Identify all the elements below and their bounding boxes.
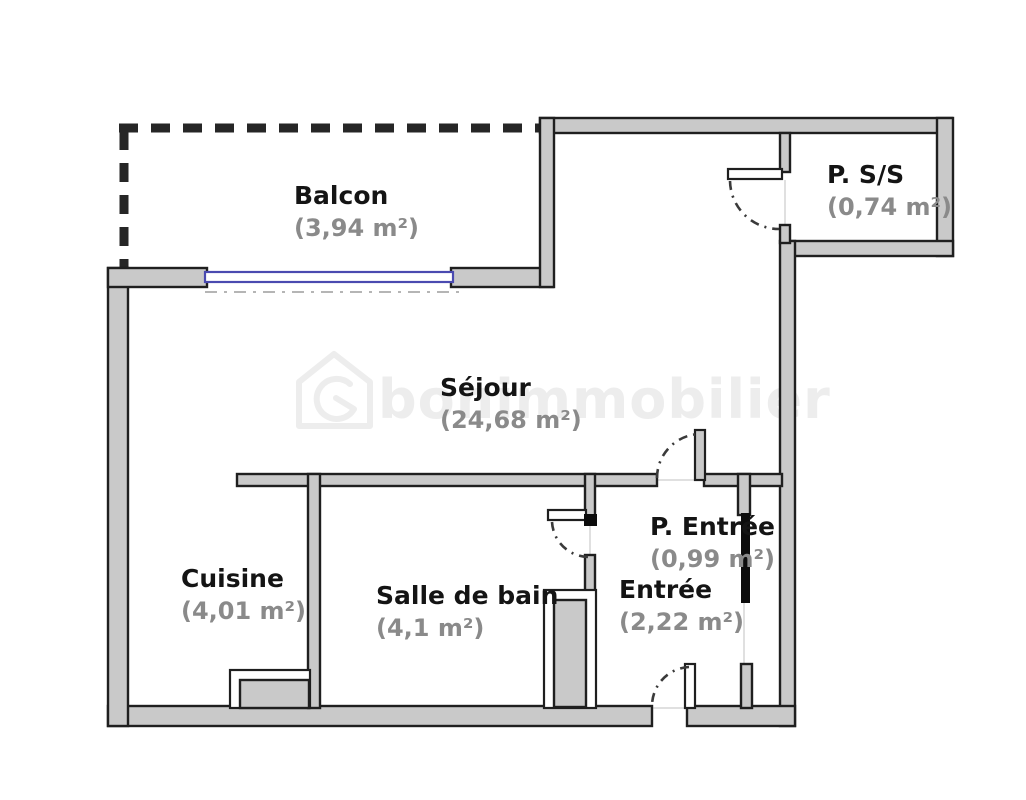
wall-top bbox=[540, 118, 952, 133]
room-name: P. Entrée bbox=[650, 514, 775, 539]
wall-sejour-right-upper bbox=[540, 118, 554, 287]
sejour-door-leaf bbox=[695, 430, 705, 480]
pss-door-arc bbox=[730, 181, 779, 229]
room-area: (3,94 m²) bbox=[294, 216, 419, 240]
watermark-logo-glyph bbox=[317, 379, 354, 419]
wall-balcony-right-pier bbox=[451, 268, 553, 287]
wall-pss-left-top bbox=[780, 133, 790, 172]
wall-balcony-left-pier bbox=[108, 268, 207, 287]
room-area: (24,68 m²) bbox=[440, 408, 582, 432]
room-name: P. S/S bbox=[827, 162, 952, 187]
room-name: Entrée bbox=[619, 577, 744, 602]
floor-plan: bonimmobilier bbox=[0, 0, 1026, 800]
room-label-salle-de-bain: Salle de bain (4,1 m²) bbox=[376, 583, 558, 640]
cuisine-shaft bbox=[240, 680, 309, 708]
room-area: (2,22 m²) bbox=[619, 610, 744, 634]
room-label-p-ss: P. S/S (0,74 m²) bbox=[827, 162, 952, 219]
room-area: (0,99 m²) bbox=[650, 547, 775, 571]
front-door-leaf bbox=[685, 664, 695, 708]
room-label-sejour: Séjour (24,68 m²) bbox=[440, 375, 582, 432]
front-door-arc bbox=[652, 667, 689, 706]
sdb-door-hinge bbox=[584, 514, 597, 526]
wall-pss-bottom bbox=[782, 241, 953, 256]
watermark-house-icon bbox=[299, 354, 370, 426]
sdb-shaft bbox=[554, 600, 586, 707]
room-area: (0,74 m²) bbox=[827, 195, 952, 219]
room-label-p-entree: P. Entrée (0,99 m²) bbox=[650, 514, 775, 571]
room-label-balcon: Balcon (3,94 m²) bbox=[294, 183, 419, 240]
room-name: Séjour bbox=[440, 375, 582, 400]
room-area: (4,01 m²) bbox=[181, 599, 306, 623]
room-label-entree: Entrée (2,22 m²) bbox=[619, 577, 744, 634]
room-label-cuisine: Cuisine (4,01 m²) bbox=[181, 566, 306, 623]
wall-pentree-stub bbox=[741, 664, 752, 708]
wall-pss-left-bottom bbox=[780, 225, 790, 243]
room-name: Cuisine bbox=[181, 566, 306, 591]
room-name: Balcon bbox=[294, 183, 419, 208]
sdb-door-leaf bbox=[548, 510, 586, 520]
room-name: Salle de bain bbox=[376, 583, 558, 608]
wall-pentree-top bbox=[738, 474, 750, 515]
window bbox=[205, 272, 453, 282]
wall-left-outer bbox=[108, 268, 128, 726]
sdb-door-arc bbox=[552, 522, 589, 557]
pss-door-leaf bbox=[728, 169, 782, 179]
room-area: (4,1 m²) bbox=[376, 616, 558, 640]
